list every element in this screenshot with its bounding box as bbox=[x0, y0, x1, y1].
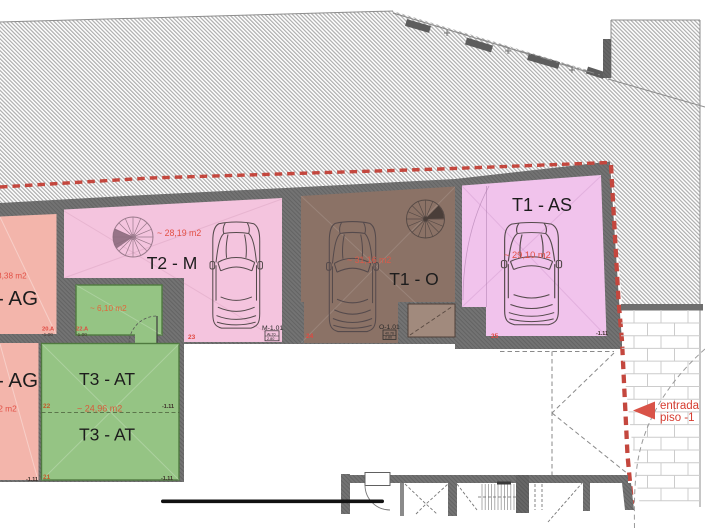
svg-text:~ 31,16 m2: ~ 31,16 m2 bbox=[347, 255, 391, 265]
svg-text:T3 - AT: T3 - AT bbox=[79, 425, 135, 445]
svg-text:T3 - AT: T3 - AT bbox=[79, 369, 135, 389]
svg-text:entrada: entrada bbox=[660, 400, 700, 412]
svg-text:- AG: - AG bbox=[0, 369, 38, 392]
svg-text:- AG: - AG bbox=[0, 287, 38, 310]
svg-text:2.80: 2.80 bbox=[385, 336, 392, 340]
svg-text:-1.11: -1.11 bbox=[162, 404, 174, 410]
svg-text:-1.11: -1.11 bbox=[161, 476, 173, 482]
svg-text:-1.00: -1.00 bbox=[42, 332, 53, 338]
svg-text:piso -1: piso -1 bbox=[660, 412, 695, 424]
svg-text:~ 2,2 m2: ~ 2,2 m2 bbox=[0, 404, 17, 414]
svg-text:Al.70: Al.70 bbox=[267, 332, 276, 336]
svg-text:22.A: 22.A bbox=[76, 327, 89, 333]
svg-text:-1.11: -1.11 bbox=[26, 477, 38, 483]
svg-text:~ 6,10 m2: ~ 6,10 m2 bbox=[90, 304, 127, 313]
svg-text:22: 22 bbox=[43, 403, 51, 410]
svg-text:21: 21 bbox=[43, 474, 51, 481]
svg-text:24: 24 bbox=[306, 333, 314, 340]
svg-text:T2 - M: T2 - M bbox=[147, 253, 198, 273]
svg-text:~ 24,96 m2: ~ 24,96 m2 bbox=[77, 404, 122, 414]
svg-text:-1.00: -1.00 bbox=[76, 332, 87, 338]
svg-text:~ 29,10 m2: ~ 29,10 m2 bbox=[504, 250, 551, 260]
svg-text:~ 28,19 m2: ~ 28,19 m2 bbox=[157, 228, 201, 238]
svg-text:23: 23 bbox=[188, 334, 196, 341]
svg-text:T1 - O: T1 - O bbox=[389, 269, 439, 289]
svg-text:25: 25 bbox=[491, 333, 499, 340]
svg-text:20.A: 20.A bbox=[42, 327, 55, 333]
svg-text:-1.11: -1.11 bbox=[596, 331, 608, 337]
svg-text:~ 8,38 m2: ~ 8,38 m2 bbox=[0, 272, 27, 281]
svg-text:2.80: 2.80 bbox=[267, 337, 274, 341]
svg-text:T1 - AS: T1 - AS bbox=[512, 195, 572, 215]
